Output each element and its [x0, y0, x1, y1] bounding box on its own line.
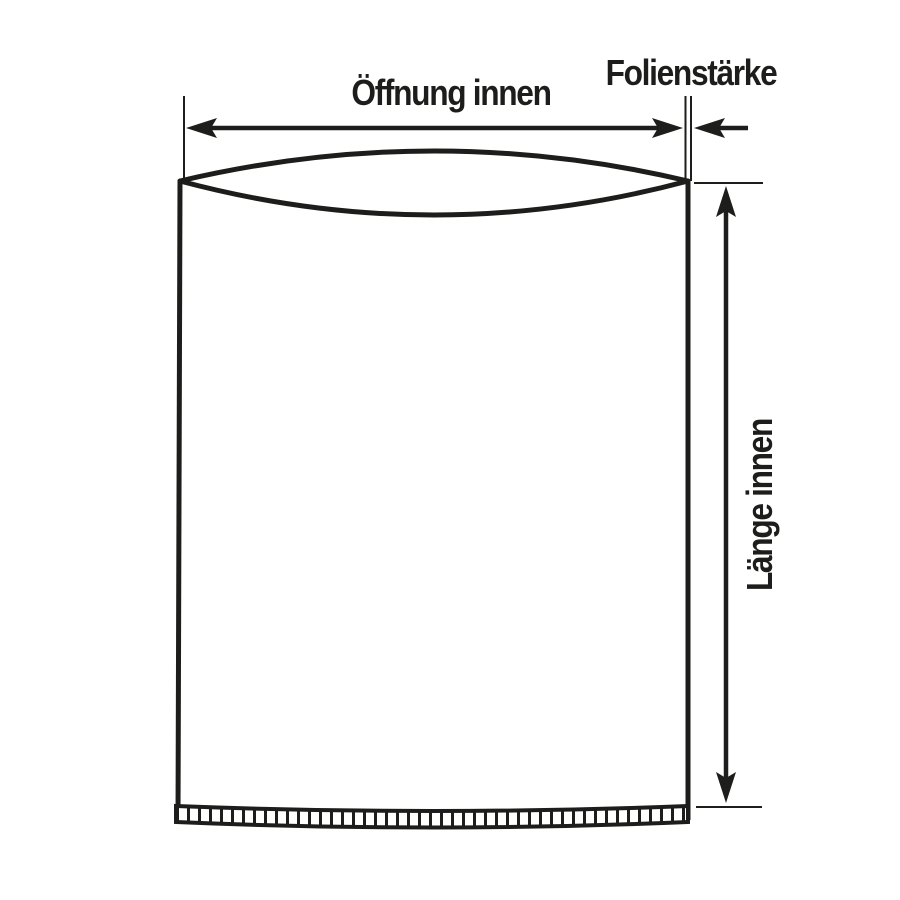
length-dimension-arrow — [716, 186, 736, 803]
bag-opening-upper-arc — [180, 151, 688, 181]
diagram-canvas: Öffnung innen Folienstärke Länge innen — [0, 0, 900, 900]
bottom-weld-seam — [176, 806, 688, 828]
bag-outline — [178, 151, 688, 820]
thickness-dimension-arrow — [694, 118, 748, 138]
inner-length-label: Länge innen — [739, 373, 781, 637]
bag-opening-lower-arc — [180, 181, 688, 215]
opening-width-label: Öffnung innen — [319, 72, 583, 114]
opening-dimension-arrow — [186, 118, 683, 138]
bag-left-edge — [178, 181, 180, 820]
film-thickness-label: Folienstärke — [603, 52, 779, 94]
